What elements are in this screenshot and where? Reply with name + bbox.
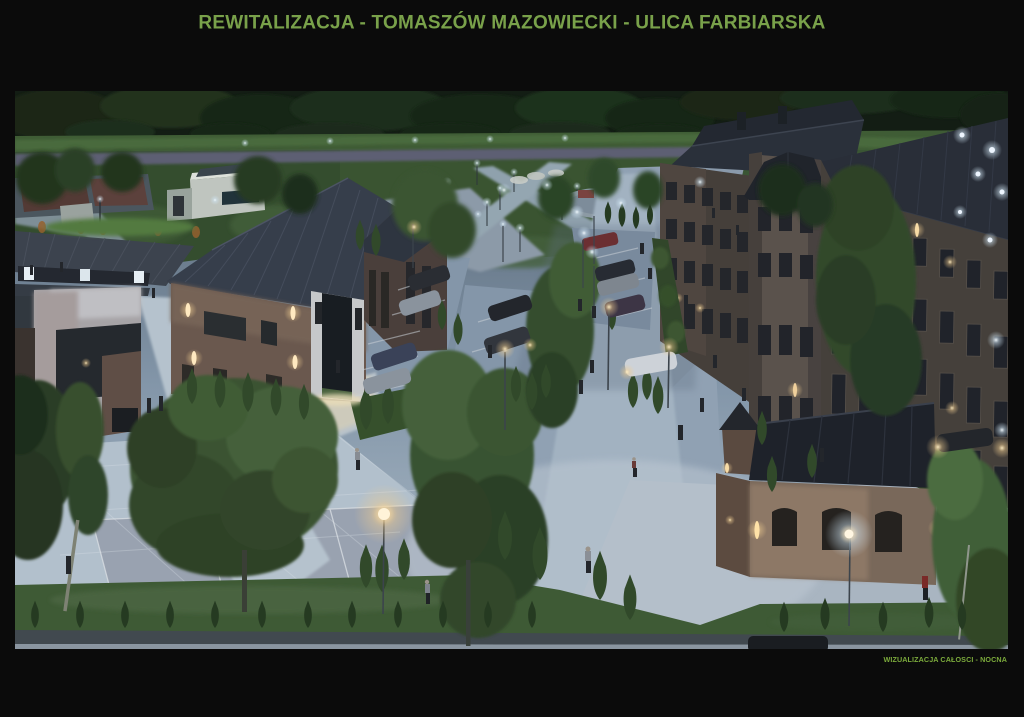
svg-text:REWITALIZACJA - TOMASZÓW MAZ: REWITALIZACJA - TOMASZÓW MAZOWIECKI - UL… [198, 12, 825, 34]
svg-text:WIZUALIZACJA CAŁOSCI - NOCNA: WIZUALIZACJA CAŁOSCI - NOCNA [883, 655, 1007, 664]
